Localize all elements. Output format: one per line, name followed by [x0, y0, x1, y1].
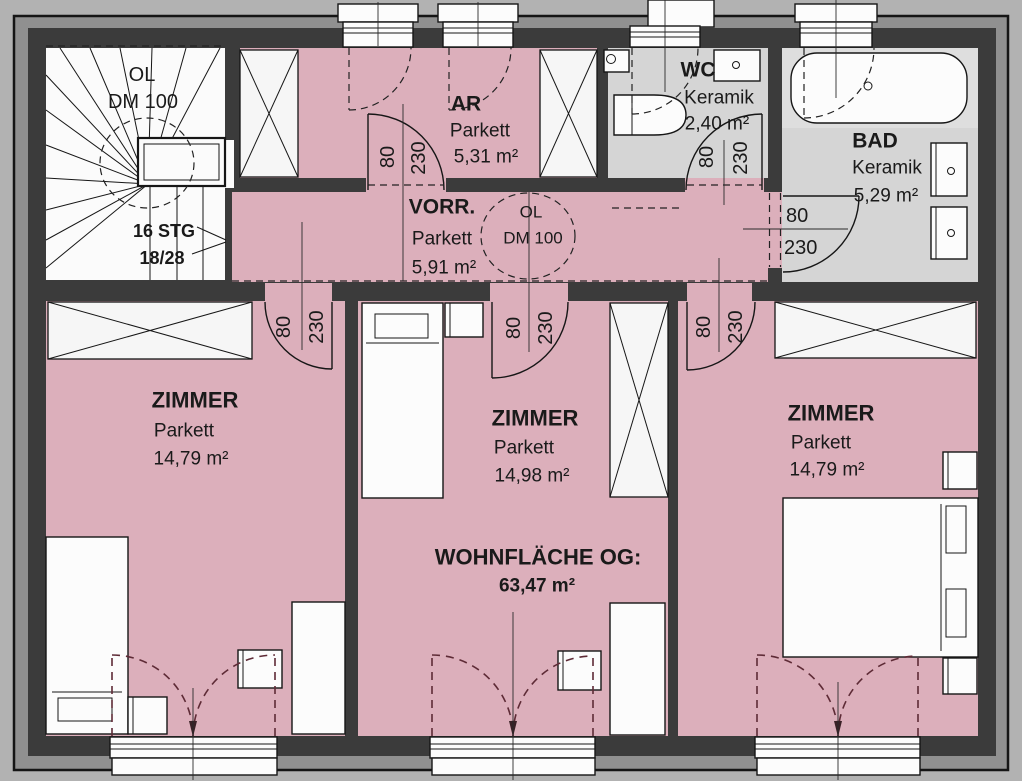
- door-height-label: 230: [535, 311, 557, 344]
- dresser: [292, 602, 345, 734]
- room-area-label: 2,40 m²: [685, 114, 749, 135]
- wardrobe: [48, 302, 252, 359]
- room-area-label: 5,31 m²: [454, 147, 518, 168]
- night-stand: [128, 697, 167, 734]
- window-sill: [112, 758, 277, 775]
- room-area-label: 14,79 m²: [154, 449, 229, 470]
- room-name-label: ZIMMER: [152, 388, 239, 413]
- french-window: [430, 737, 595, 758]
- floor-plan: OL DM 100 16 STG 18/28: [0, 0, 1022, 781]
- stair-skylight-dim: DM 100: [108, 91, 178, 113]
- toilet: [614, 95, 686, 135]
- room-name-label: BAD: [852, 130, 898, 153]
- room-floor-label: Parkett: [154, 421, 215, 442]
- bed: [362, 303, 443, 498]
- hall-vorr-floor: [232, 192, 768, 282]
- door-width-label: 80: [696, 146, 718, 168]
- night-stand: [558, 651, 601, 690]
- stair-landing: [138, 138, 225, 186]
- right-door-opening: [687, 283, 752, 301]
- total-area-label: WOHNFLÄCHE OG:: [435, 545, 642, 570]
- bathtub: [791, 53, 967, 123]
- window-sill: [432, 758, 595, 775]
- room-name-label: VORR.: [409, 196, 476, 219]
- french-window: [755, 737, 920, 758]
- room-floor-label: Keramik: [684, 88, 754, 109]
- hall-skylight-dim: DM 100: [503, 229, 563, 248]
- room-area-label: 14,79 m²: [790, 460, 865, 481]
- hall-skylight-label: OL: [520, 203, 543, 222]
- room-name-label: WC: [681, 59, 716, 82]
- room-floor-label: Parkett: [450, 121, 511, 142]
- stair-steps-label: 16 STG: [133, 221, 195, 241]
- room-floor-label: Parkett: [494, 438, 555, 459]
- door-height-label: 230: [306, 310, 328, 343]
- door-width-label: 80: [273, 316, 295, 338]
- wardrobe: [775, 302, 976, 358]
- dresser: [610, 603, 665, 735]
- stair-step-dim-label: 18/28: [139, 248, 184, 268]
- room-name-label: ZIMMER: [788, 401, 875, 426]
- wardrobe: [240, 50, 298, 177]
- room-area-label: 14,98 m²: [495, 466, 570, 487]
- room-floor-label: Parkett: [412, 229, 473, 250]
- night-stand: [445, 303, 483, 337]
- door-height-label: 230: [725, 310, 747, 343]
- room-area-label: 5,91 m²: [412, 258, 476, 279]
- windows-bottom: [110, 737, 920, 775]
- door-width-label: 80: [377, 146, 399, 168]
- door-height-label: 230: [730, 141, 752, 174]
- door-width-label: 80: [503, 317, 525, 339]
- wardrobe: [610, 303, 668, 497]
- room-area-label: 5,29 m²: [854, 186, 918, 207]
- vent-box: [604, 50, 629, 72]
- stair-skylight-label: OL: [129, 64, 156, 86]
- room-floor-label: Keramik: [852, 158, 922, 179]
- total-area-value: 63,47 m²: [499, 576, 575, 597]
- door-height-label: 230: [784, 237, 817, 259]
- double-bed: [783, 498, 978, 657]
- dormer-sill: [648, 0, 714, 27]
- room-name-label: AR: [451, 93, 481, 116]
- door-width-label: 80: [786, 205, 808, 227]
- room-name-label: ZIMMER: [492, 406, 579, 431]
- room-floor-label: Parkett: [791, 433, 852, 454]
- left-door-opening: [265, 283, 332, 301]
- window-sill: [757, 758, 920, 775]
- wc-washbasin: [714, 50, 760, 81]
- floor-plan-page: OL DM 100 16 STG 18/28: [0, 0, 1022, 781]
- wardrobe: [540, 50, 597, 177]
- door-height-label: 230: [408, 141, 430, 174]
- french-window: [110, 737, 277, 758]
- door-width-label: 80: [693, 316, 715, 338]
